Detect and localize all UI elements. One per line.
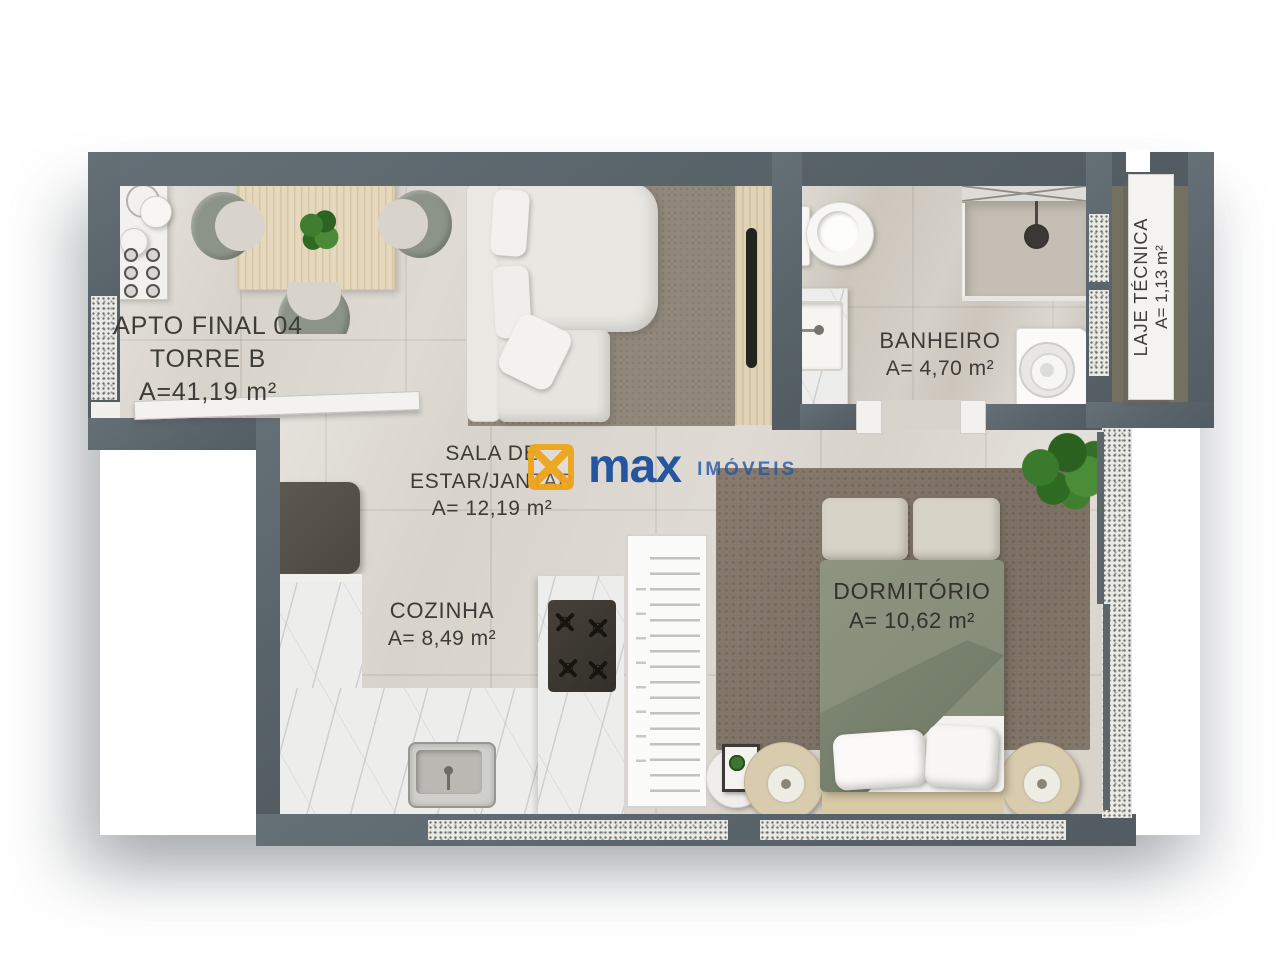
sideboard-knob <box>146 266 160 280</box>
wall-laje-right <box>1188 152 1214 428</box>
sideboard-knob <box>146 284 160 298</box>
faucet-icon <box>814 325 824 335</box>
wall-laje-bottom <box>1086 402 1214 428</box>
burner-icon <box>553 610 577 634</box>
kitchen-label-name: COZINHA <box>352 596 532 625</box>
sideboard-knob <box>124 266 138 280</box>
vent-window-laje <box>1089 214 1109 282</box>
sideboard-knob <box>124 284 138 298</box>
decor-vase-large <box>140 196 172 228</box>
wall-top-notch <box>1126 150 1150 172</box>
max-logo-box-x-icon <box>528 444 574 490</box>
bedroom-label-name: DORMITÓRIO <box>820 576 1004 606</box>
window-frame-slat <box>1097 432 1104 604</box>
window-frame-slat <box>1103 604 1110 810</box>
table-plant <box>294 206 344 254</box>
cooktop <box>548 600 616 692</box>
apartment-label-area: A=41,19 m² <box>96 376 320 409</box>
vent-window-laje <box>1089 290 1109 376</box>
window-bottom <box>428 820 728 840</box>
headboard-cushion <box>822 498 908 560</box>
shower-glass-top <box>962 186 1086 203</box>
bathroom-label-area: A= 4,70 m² <box>848 355 1032 383</box>
sideboard-knob <box>146 248 160 262</box>
kitchen-label: COZINHA A= 8,49 m² <box>352 596 532 653</box>
bedroom-label-area: A= 10,62 m² <box>820 606 1004 635</box>
wall-entry-step <box>88 418 280 450</box>
shower-head-icon <box>1024 224 1049 249</box>
dining-chair-left <box>191 192 255 260</box>
bed-base <box>822 788 1004 816</box>
burner-icon <box>586 658 610 682</box>
apartment-label-line1: APTO FINAL 04 <box>96 310 320 343</box>
kitchen-sink <box>408 742 496 808</box>
nightstand-right <box>1000 742 1080 822</box>
sofa-pillow <box>490 189 531 257</box>
apartment-label-line2: TORRE B <box>96 343 320 376</box>
tv <box>746 228 757 368</box>
laje-tecnica-area: A= 1,13 m² <box>1152 175 1172 399</box>
wall-living-bathroom <box>772 152 802 430</box>
bathroom-label: BANHEIRO A= 4,70 m² <box>848 326 1032 383</box>
headboard-cushion <box>913 498 1000 560</box>
logo-brand-text: max <box>588 447 681 488</box>
wall-top <box>88 152 1214 186</box>
logo-suffix-text: IMÓVEIS <box>697 459 797 481</box>
wall-bathroom-bottom <box>800 404 860 430</box>
bathroom-label-name: BANHEIRO <box>848 326 1032 355</box>
nightstand-left <box>744 742 824 822</box>
wall-kitchen-left <box>256 418 280 846</box>
living-label-area: A= 12,19 m² <box>400 495 584 523</box>
burner-icon <box>586 616 610 640</box>
bathroom-door-jamb <box>960 400 986 434</box>
bed-pillow <box>924 724 999 790</box>
shower-area <box>962 203 1089 299</box>
apartment-label: APTO FINAL 04 TORRE B A=41,19 m² <box>96 310 320 409</box>
bed-pillow <box>832 729 928 791</box>
toilet-bowl <box>806 202 874 266</box>
laje-tecnica-sign: LAJE TÉCNICA A= 1,13 m² <box>1128 174 1174 400</box>
dining-chair-right <box>388 190 452 258</box>
floor-plan: LAJE TÉCNICA A= 1,13 m² APTO FINAL 04 TO… <box>0 0 1280 960</box>
bedroom-label: DORMITÓRIO A= 10,62 m² <box>820 576 1004 635</box>
kitchen-label-area: A= 8,49 m² <box>352 625 532 653</box>
pantry-shelf-unit <box>626 534 708 808</box>
max-imoveis-watermark: max IMÓVEIS <box>528 444 797 490</box>
fridge <box>280 482 360 574</box>
lamp-icon <box>1022 764 1062 804</box>
window-bottom <box>760 820 1066 840</box>
burner-icon <box>556 656 580 680</box>
lamp-icon <box>766 764 806 804</box>
sideboard-knob <box>124 248 138 262</box>
bathroom-door-jamb <box>856 400 882 434</box>
counter-edge <box>280 574 362 582</box>
wall-bathroom-bottom <box>982 404 1090 430</box>
shower-lip <box>962 296 1086 301</box>
laje-tecnica-name: LAJE TÉCNICA <box>1131 175 1152 399</box>
